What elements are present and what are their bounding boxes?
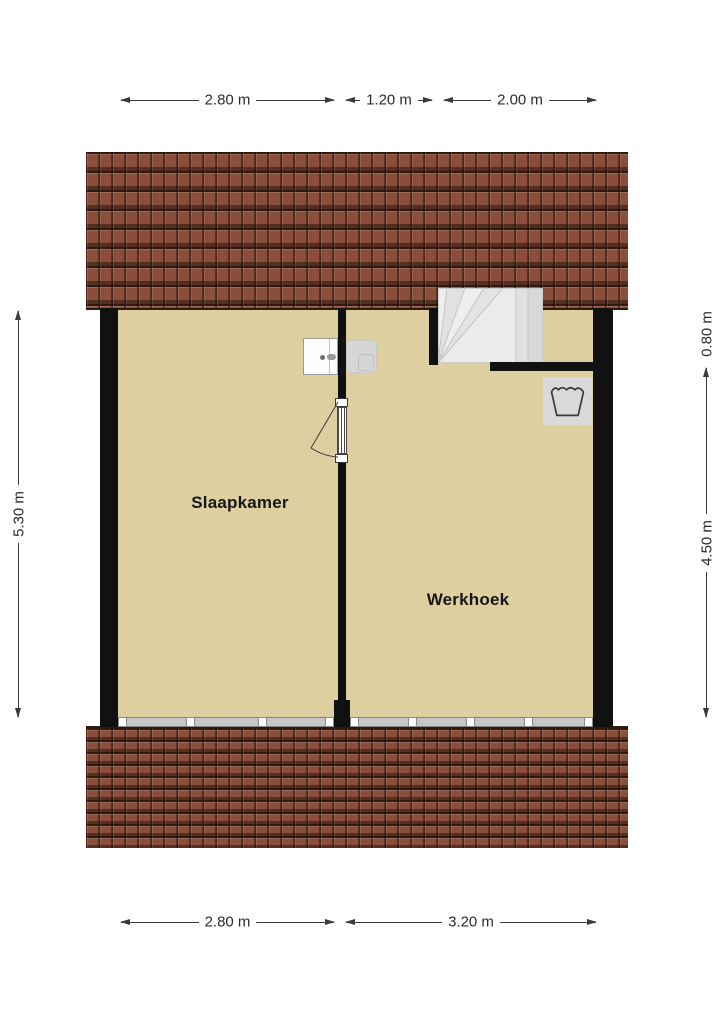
window-band-right (350, 717, 593, 727)
tap-handle-icon (327, 354, 336, 360)
window-mullion (584, 717, 593, 727)
arrow-left-icon (443, 97, 453, 103)
room-label-slaapkamer: Slaapkamer (158, 493, 322, 513)
door-swing-arc-icon (305, 395, 350, 465)
laundry-area (543, 377, 592, 425)
floor-plan: Slaapkamer Werkhoek 2.80 m 1.20 m 2.00 m… (0, 0, 724, 1024)
roof-top (86, 152, 628, 310)
window-mullion (118, 717, 127, 727)
window-mullion (350, 717, 359, 727)
window-mullion (186, 717, 195, 727)
window-mullion (258, 717, 267, 727)
window-band-left (118, 717, 334, 727)
wall-middle-top (338, 308, 346, 398)
wall-left (100, 308, 118, 727)
laundry-wash-icon (543, 377, 592, 425)
arrow-left-icon (345, 919, 355, 925)
arrow-up-icon (703, 367, 709, 377)
window-mullion (524, 717, 533, 727)
wall-horizontal (490, 362, 593, 371)
wall-middle-foot (334, 700, 350, 727)
arrow-down-icon (15, 708, 21, 718)
arrow-left-icon (345, 97, 355, 103)
dimension-label: 2.00 m (491, 92, 549, 109)
dimension-bottom-320: 5.30 m 3.20 m (345, 914, 597, 930)
washbasin-icon (303, 338, 338, 375)
dimension-label: 3.20 m (442, 914, 500, 931)
arrow-down-icon (703, 708, 709, 718)
arrow-left-icon (120, 97, 130, 103)
dimension-top-280: 2.80 m (120, 92, 335, 108)
dimension-top-200: 2.00 m (443, 92, 597, 108)
dimension-label: 2.80 m (199, 92, 257, 109)
arrow-right-icon (587, 919, 597, 925)
arrow-right-icon (325, 97, 335, 103)
dimension-right-080: 0.80 m (698, 305, 714, 362)
arrow-up-icon (15, 310, 21, 320)
cabinet-inner-detail (358, 354, 374, 371)
dimension-label: 1.20 m (360, 92, 418, 109)
window-mullion (408, 717, 417, 727)
room-label-werkhoek: Werkhoek (386, 590, 550, 610)
tap-dot-icon (320, 355, 325, 360)
wall-right (593, 308, 613, 727)
arrow-right-icon (587, 97, 597, 103)
dimension-bottom-280: 2.80 m (120, 914, 335, 930)
dimension-label: 2.80 m (199, 914, 257, 931)
dimension-label: 5.30 m (10, 485, 27, 543)
dimension-label: 0.80 m (698, 305, 715, 363)
roof-bottom (86, 726, 628, 848)
dimension-right-450: 4.50 m (698, 367, 714, 718)
winder-stairs-icon (438, 288, 543, 363)
arrow-right-icon (325, 919, 335, 925)
arrow-left-icon (120, 919, 130, 925)
dimension-label: 4.50 m (698, 514, 715, 572)
window-mullion (466, 717, 475, 727)
wall-middle-bottom (338, 463, 346, 727)
wall-stairs (429, 308, 438, 365)
arrow-right-icon (423, 97, 433, 103)
cabinet-icon (346, 340, 377, 373)
dimension-left-530: 5.30 m (10, 310, 26, 718)
dimension-top-120: 1.20 m (345, 92, 433, 108)
window-mullion (325, 717, 334, 727)
